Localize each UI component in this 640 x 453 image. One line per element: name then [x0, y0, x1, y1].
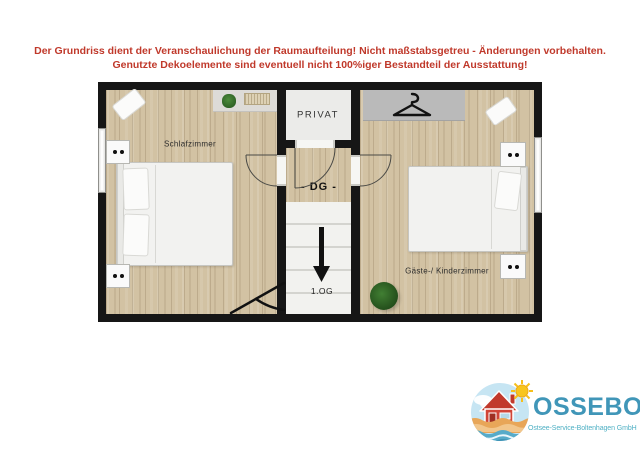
knob-icon	[508, 153, 512, 157]
window-right	[534, 137, 542, 213]
knob-icon	[515, 265, 519, 269]
disclaimer: Der Grundriss dient der Veranschaulichun…	[0, 44, 640, 72]
label-privat: PRIVAT	[297, 110, 339, 121]
label-stairs-target: 1.OG	[311, 286, 333, 296]
disclaimer-line1: Der Grundriss dient der Veranschaulichun…	[0, 44, 640, 58]
door-opening-schlafzimmer	[277, 155, 286, 186]
knob-icon	[120, 150, 124, 154]
basket	[244, 93, 270, 105]
label-kinderzimmer: Gäste-/ Kinderzimmer	[405, 267, 489, 276]
knob-icon	[515, 153, 519, 157]
wall-right-upper	[351, 90, 360, 155]
window-left	[98, 128, 106, 193]
wall-privat-left	[286, 140, 295, 148]
bed-schlafzimmer	[116, 162, 233, 266]
logo-subtitle: Ostsee-Service-Boltenhagen GmbH	[528, 425, 637, 432]
door-opening-privat	[295, 140, 335, 148]
nightstand	[106, 264, 130, 288]
pillow	[494, 171, 522, 212]
knob-icon	[113, 274, 117, 278]
nightstand	[106, 140, 130, 164]
knob-icon	[113, 150, 117, 154]
company-logo: OSSEBO Ostsee-Service-Boltenhagen GmbH	[470, 377, 640, 451]
hallway-landing	[286, 148, 351, 202]
floorplan-page: Der Grundriss dient der Veranschaulichun…	[0, 0, 640, 453]
wall-right-lower	[351, 186, 360, 314]
knob-icon	[120, 274, 124, 278]
disclaimer-line2: Genutzte Dekoelemente sind eventuell nic…	[0, 58, 640, 72]
nightstand	[500, 254, 526, 279]
blanket-fold	[155, 165, 156, 263]
nightstand	[500, 142, 526, 167]
staircase	[286, 202, 351, 314]
pillow	[122, 168, 149, 211]
label-schlafzimmer: Schlafzimmer	[164, 140, 216, 149]
wall-left-lower	[277, 186, 286, 314]
bed-kinderzimmer	[408, 166, 528, 252]
pillow	[122, 214, 149, 257]
label-floor-dg: - DG -	[301, 181, 337, 193]
plant-icon	[370, 282, 398, 310]
blanket-fold	[491, 169, 492, 249]
plant-icon	[222, 94, 236, 108]
wardrobe	[363, 90, 465, 121]
door-opening-kinderzimmer	[351, 155, 360, 186]
knob-icon	[508, 265, 512, 269]
wall-privat-right	[335, 140, 351, 148]
floor-plan: Schlafzimmer Gäste-/ Kinderzimmer PRIVAT…	[98, 82, 542, 322]
wall-left-upper	[277, 90, 286, 155]
logo-name: OSSEBO	[533, 393, 640, 422]
logo-emblem-icon	[470, 379, 536, 449]
